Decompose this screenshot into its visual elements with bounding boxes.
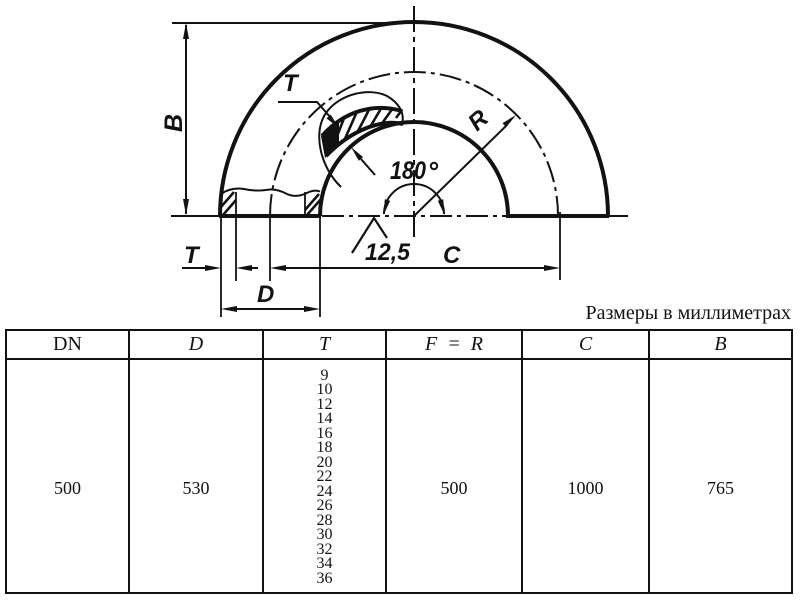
svg-text:12,5: 12,5 [365, 239, 411, 266]
svg-text:T: T [184, 242, 201, 269]
svg-text:C: C [443, 242, 461, 269]
svg-text:T: T [283, 70, 300, 97]
svg-text:R: R [463, 104, 494, 136]
svg-text:B: B [160, 114, 188, 132]
svg-text:180: 180 [390, 157, 426, 185]
